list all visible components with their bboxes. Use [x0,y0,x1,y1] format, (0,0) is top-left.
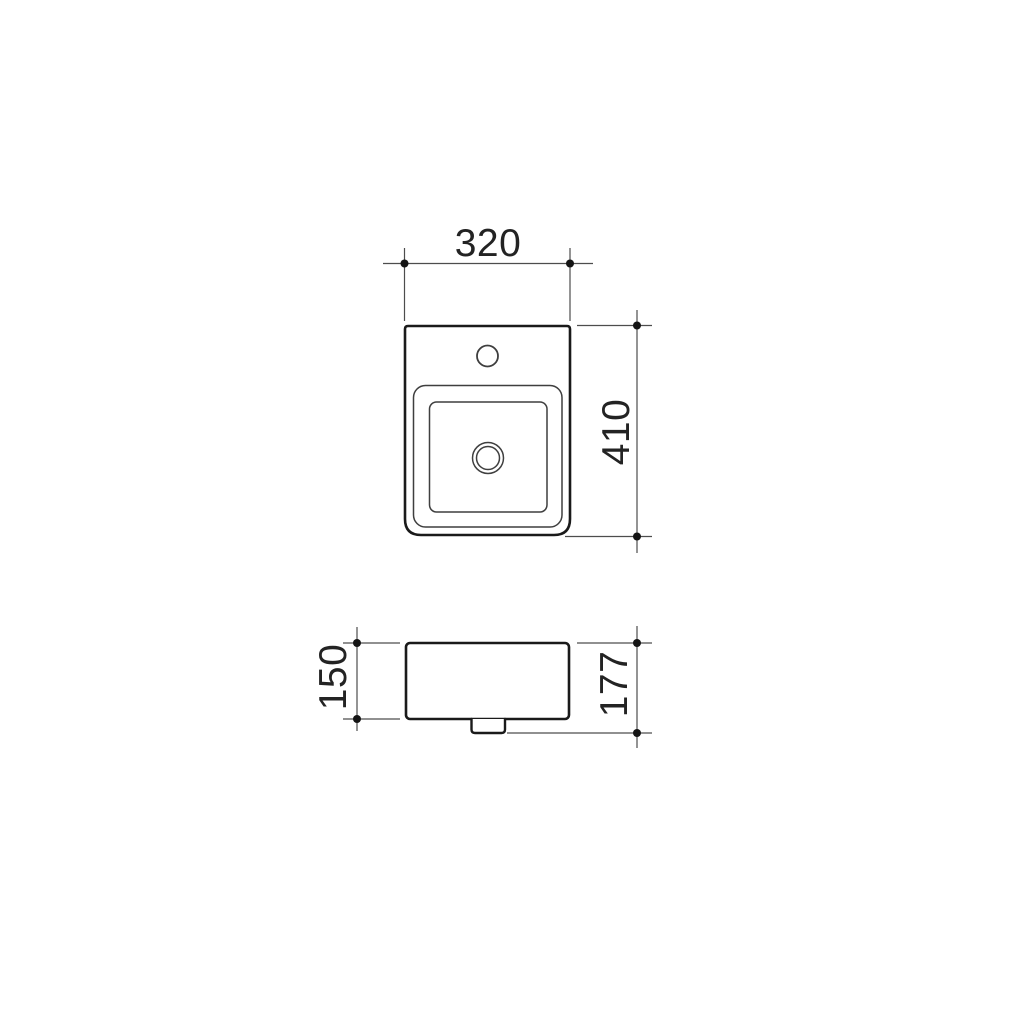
dimension-depth: 410 [565,310,652,553]
dimension-dot [633,729,641,737]
dimension-width-label: 320 [455,222,522,265]
plan-view [405,326,570,535]
dimension-dot [633,322,641,330]
dimension-dot [353,715,361,723]
dimension-body-height: 150 [312,627,400,731]
dimension-total-height-label: 177 [593,651,636,718]
dimension-dot [566,260,574,268]
dimension-body-height-label: 150 [312,644,355,711]
side-elevation-view [406,643,569,733]
dimension-dot [401,260,409,268]
side-outline [406,643,569,719]
basin-technical-drawing: 320 410 150 177 [0,0,1024,1024]
dimension-dot [633,639,641,647]
technical-drawing-canvas: 320 410 150 177 [0,0,1024,1024]
dimension-depth-label: 410 [595,399,638,466]
dimension-dot [633,533,641,541]
dimension-width: 320 [383,222,593,321]
waste-outlet-side [472,719,506,733]
